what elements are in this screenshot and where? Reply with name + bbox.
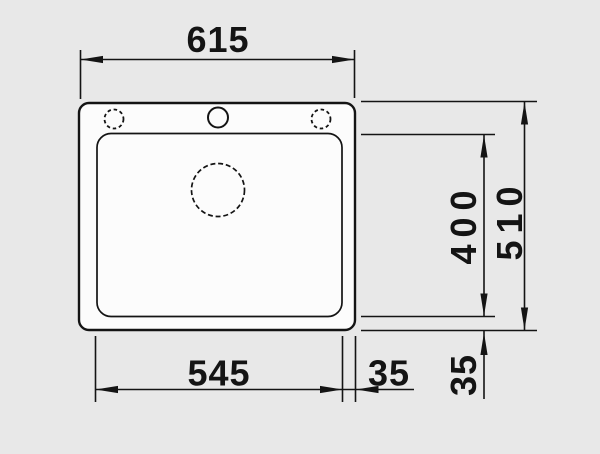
dimension-offset-depth: 35: [443, 331, 488, 400]
dimension-overall-width: 615: [81, 19, 355, 99]
arrowhead-left: [81, 56, 104, 63]
drawing-root: 615 510 400: [79, 19, 537, 402]
arrowhead-up: [480, 333, 487, 356]
arrowhead-up: [521, 102, 528, 125]
dimension-offset-width: 35: [343, 336, 415, 402]
arrowhead-up: [480, 135, 487, 158]
arrowhead-right: [320, 386, 343, 393]
dimension-label-overall-depth: 510: [489, 179, 530, 260]
arrowhead-down: [480, 294, 487, 317]
arrowhead-right: [332, 56, 355, 63]
sink-dimension-diagram: 615 510 400: [0, 0, 600, 454]
dimension-label-bowl-width: 545: [187, 353, 250, 394]
technical-drawing-canvas: 615 510 400: [0, 0, 600, 454]
dimension-bowl-width: 545: [96, 336, 343, 402]
sink-body: [79, 103, 355, 330]
dimension-label-offset-width: 35: [368, 353, 410, 394]
dimension-label-overall-width: 615: [186, 19, 249, 60]
arrowhead-left: [96, 386, 119, 393]
dimension-label-offset-depth: 35: [443, 354, 484, 396]
dimension-label-bowl-depth: 400: [443, 183, 484, 264]
dimension-bowl-depth: 400: [361, 135, 495, 317]
arrowhead-down: [521, 308, 528, 331]
